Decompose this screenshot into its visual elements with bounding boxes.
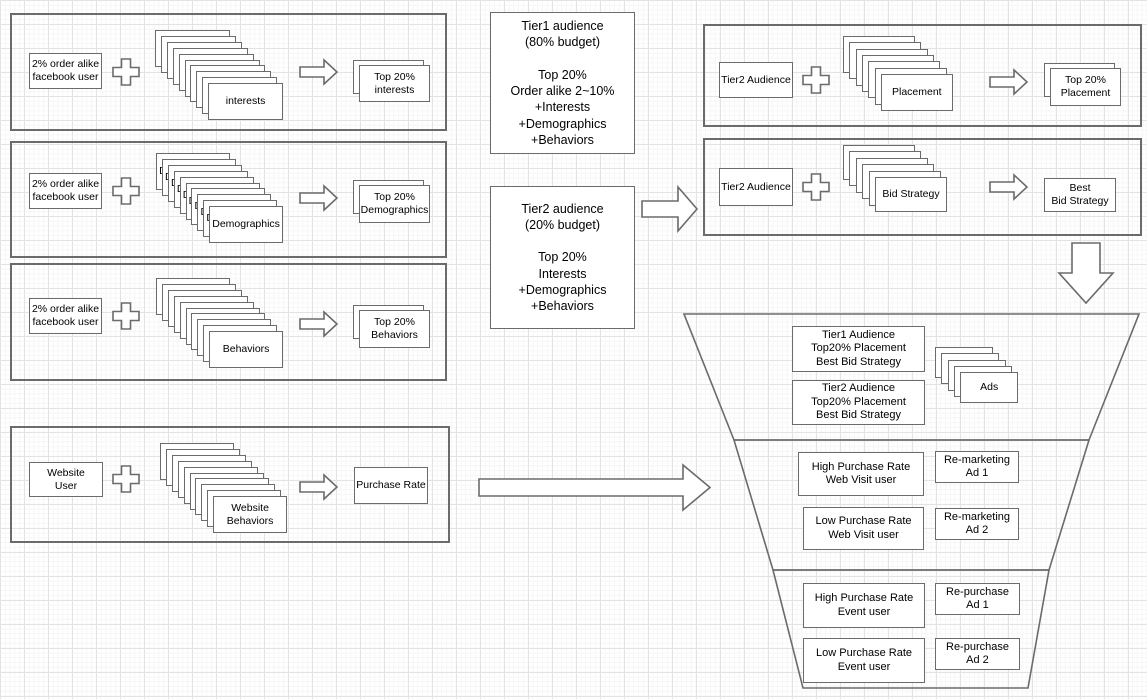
stack-card[interactable]: Behaviors xyxy=(209,331,283,368)
ads-stack[interactable]: AdsAdsAdsAdsAds xyxy=(935,347,1018,403)
result-box-top20-placement[interactable]: Top 20% Placement xyxy=(1050,68,1121,106)
result-box-best-bid-strategy[interactable]: Best Bid Strategy xyxy=(1044,178,1116,212)
funnel-box-repurchase-ad2[interactable]: Re-purchase Ad 2 xyxy=(935,638,1020,670)
result-box-top20-behaviors[interactable]: Top 20% Behaviors xyxy=(359,310,430,348)
source-box-lookalike-3[interactable]: 2% order alike facebook user xyxy=(29,298,102,334)
website-behaviors-stack[interactable]: Website BehaviorsWebsite BehaviorsWebsit… xyxy=(160,443,287,533)
source-box-tier2-audience-1[interactable]: Tier2 Audience xyxy=(719,62,793,98)
stack-card[interactable]: Ads xyxy=(960,372,1018,403)
stack-card[interactable]: Placement xyxy=(881,74,953,111)
funnel-box-low-purchase-event[interactable]: Low Purchase Rate Event user xyxy=(803,638,925,683)
demographics-stack[interactable]: DemographicsDemographicsDemographicsDemo… xyxy=(156,153,283,243)
funnel-box-repurchase-ad1[interactable]: Re-purchase Ad 1 xyxy=(935,583,1020,615)
source-box-website-user[interactable]: Website User xyxy=(29,462,103,497)
arrow-website-to-funnel[interactable] xyxy=(479,465,710,510)
stack-card[interactable]: Bid Strategy xyxy=(875,177,947,212)
behaviors-stack[interactable]: BehaviorsBehaviorsBehaviorsBehaviorsBeha… xyxy=(156,278,283,368)
arrow-tier2-to-right-group[interactable] xyxy=(642,187,697,231)
stack-card[interactable]: Demographics xyxy=(209,206,283,243)
funnel-box-remarketing-ad2[interactable]: Re-marketing Ad 2 xyxy=(935,508,1019,540)
source-box-lookalike-1[interactable]: 2% order alike facebook user xyxy=(29,53,102,89)
result-box-top20-interests[interactable]: Top 20% interests xyxy=(359,65,430,102)
tier2-audience-note[interactable]: Tier2 audience (20% budget) Top 20% Inte… xyxy=(490,186,635,329)
bid-strategy-stack[interactable]: Bid StrategyBid StrategyBid StrategyBid … xyxy=(843,145,947,212)
arrow-down-to-funnel[interactable] xyxy=(1059,243,1113,303)
interests-stack[interactable]: interestsinterestsinterestsinterestsinte… xyxy=(155,30,283,120)
tier1-audience-note[interactable]: Tier1 audience (80% budget) Top 20% Orde… xyxy=(490,12,635,154)
funnel-box-remarketing-ad1[interactable]: Re-marketing Ad 1 xyxy=(935,451,1019,483)
source-box-tier2-audience-2[interactable]: Tier2 Audience xyxy=(719,168,793,206)
funnel-box-tier1-setup[interactable]: Tier1 Audience Top20% Placement Best Bid… xyxy=(792,326,925,372)
funnel-box-low-purchase-web[interactable]: Low Purchase Rate Web Visit user xyxy=(803,507,924,550)
funnel-box-high-purchase-event[interactable]: High Purchase Rate Event user xyxy=(803,583,925,628)
placement-stack[interactable]: PlacementPlacementPlacementPlacementPlac… xyxy=(843,36,953,111)
funnel-box-tier2-setup[interactable]: Tier2 Audience Top20% Placement Best Bid… xyxy=(792,380,925,425)
funnel-box-high-purchase-web[interactable]: High Purchase Rate Web Visit user xyxy=(798,452,924,496)
result-box-top20-demographics[interactable]: Top 20% Demographics xyxy=(359,185,430,223)
source-box-lookalike-2[interactable]: 2% order alike facebook user xyxy=(29,173,102,209)
diagram-canvas: 2% order alike facebook user interestsin… xyxy=(0,0,1147,699)
result-box-purchase-rate[interactable]: Purchase Rate xyxy=(354,467,428,504)
stack-card[interactable]: Website Behaviors xyxy=(213,496,287,533)
stack-card[interactable]: interests xyxy=(208,83,283,120)
